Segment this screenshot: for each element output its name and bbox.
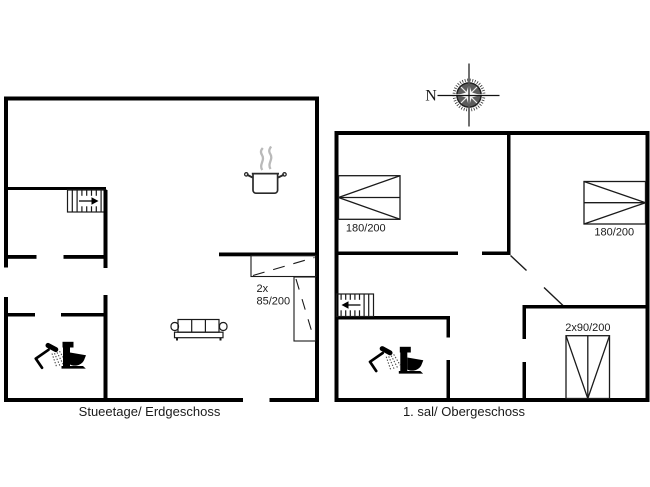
svg-text:2x: 2x (257, 283, 269, 295)
svg-text:Stueetage/ Erdgeschoss: Stueetage/ Erdgeschoss (79, 404, 221, 419)
svg-text:85/200: 85/200 (257, 296, 291, 308)
svg-text:2x90/200: 2x90/200 (565, 322, 610, 334)
svg-text:180/200: 180/200 (346, 223, 386, 235)
svg-text:180/200: 180/200 (594, 226, 634, 238)
svg-text:1. sal/ Obergeschoss: 1. sal/ Obergeschoss (403, 404, 526, 419)
svg-text:N: N (425, 87, 437, 104)
